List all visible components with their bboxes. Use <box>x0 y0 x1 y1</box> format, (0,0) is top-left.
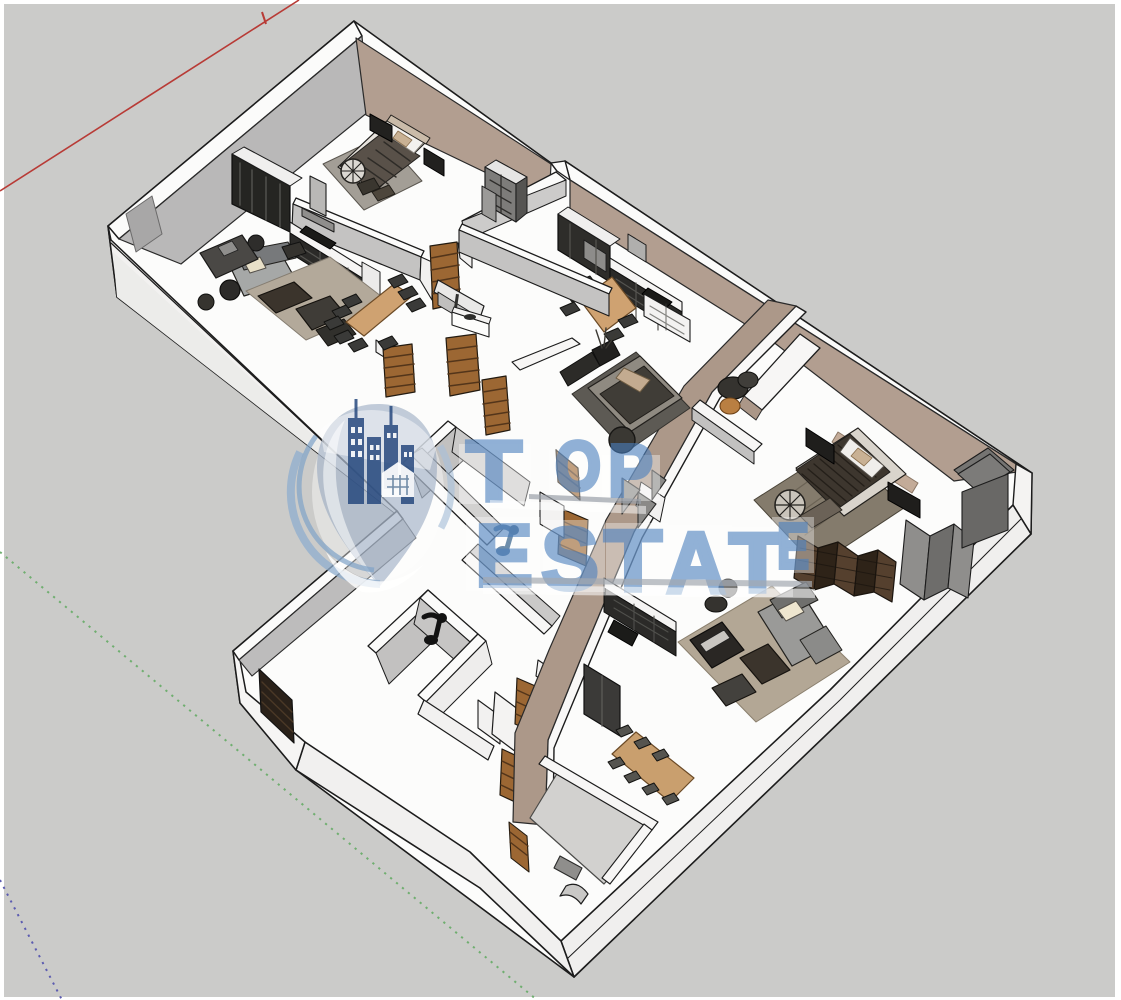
svg-text:A: A <box>666 515 726 612</box>
svg-text:E: E <box>777 510 809 582</box>
svg-text:O: O <box>555 427 601 505</box>
